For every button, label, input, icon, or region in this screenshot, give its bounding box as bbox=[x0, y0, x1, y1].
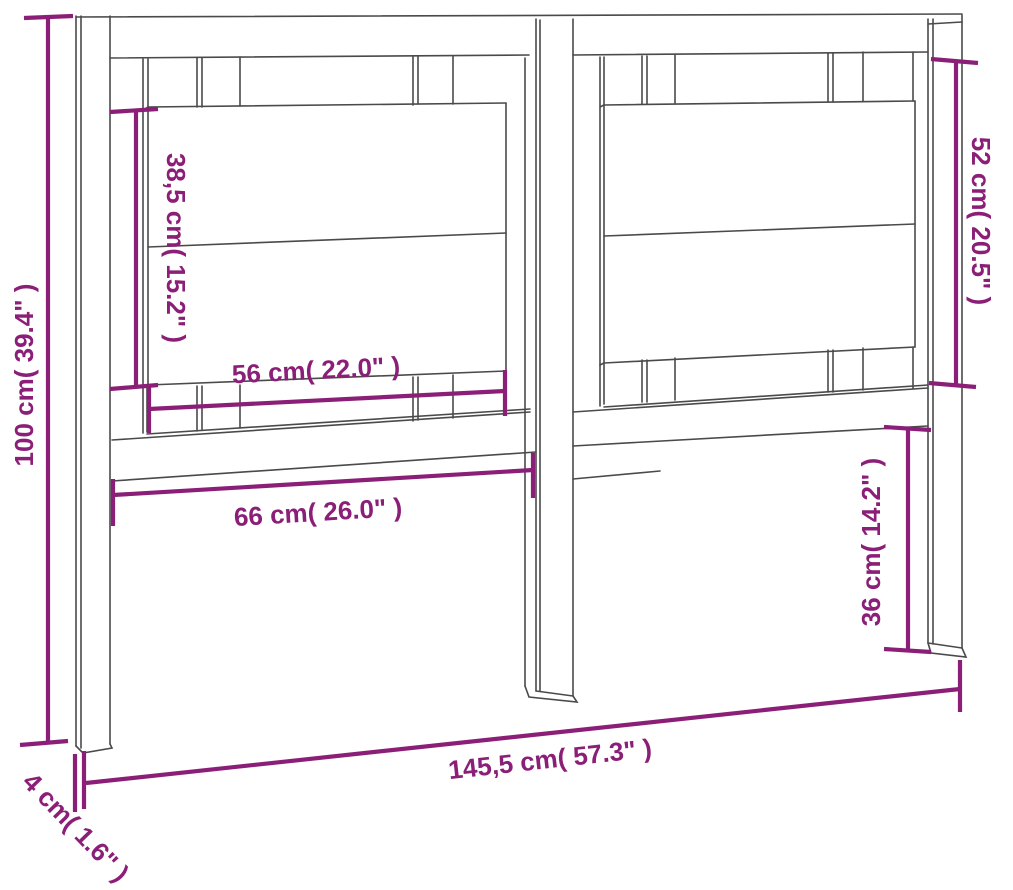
right-post bbox=[928, 15, 966, 657]
middle-post bbox=[525, 19, 577, 702]
top-spacers-left bbox=[143, 56, 453, 108]
left-panel-seam bbox=[148, 233, 506, 247]
right-panel bbox=[600, 101, 915, 365]
dimension-label-left-panel-height: 38,5 cm( 15.2" ) bbox=[163, 153, 189, 343]
top-spacers-right bbox=[600, 52, 913, 106]
headboard-dimension-diagram: 100 cm( 39.4" ) 38,5 cm( 15.2" ) 52 cm( … bbox=[0, 0, 1013, 890]
dim-line-left-panel-height bbox=[110, 109, 158, 389]
dim-line-post-depth bbox=[75, 751, 84, 812]
right-panel-seam bbox=[604, 224, 915, 236]
dimension-label-leg-height: 36 cm( 14.2" ) bbox=[858, 458, 884, 626]
dim-line-leg-height bbox=[884, 427, 931, 652]
left-post bbox=[76, 16, 112, 753]
cross-rail-left bbox=[112, 409, 536, 481]
dimension-label-total-height: 100 cm( 39.4" ) bbox=[11, 284, 37, 467]
dimension-label-right-panel-height: 52 cm( 20.5" ) bbox=[968, 137, 994, 305]
top-rail bbox=[76, 14, 962, 58]
headboard-structure bbox=[76, 14, 966, 753]
left-panel bbox=[143, 103, 506, 387]
